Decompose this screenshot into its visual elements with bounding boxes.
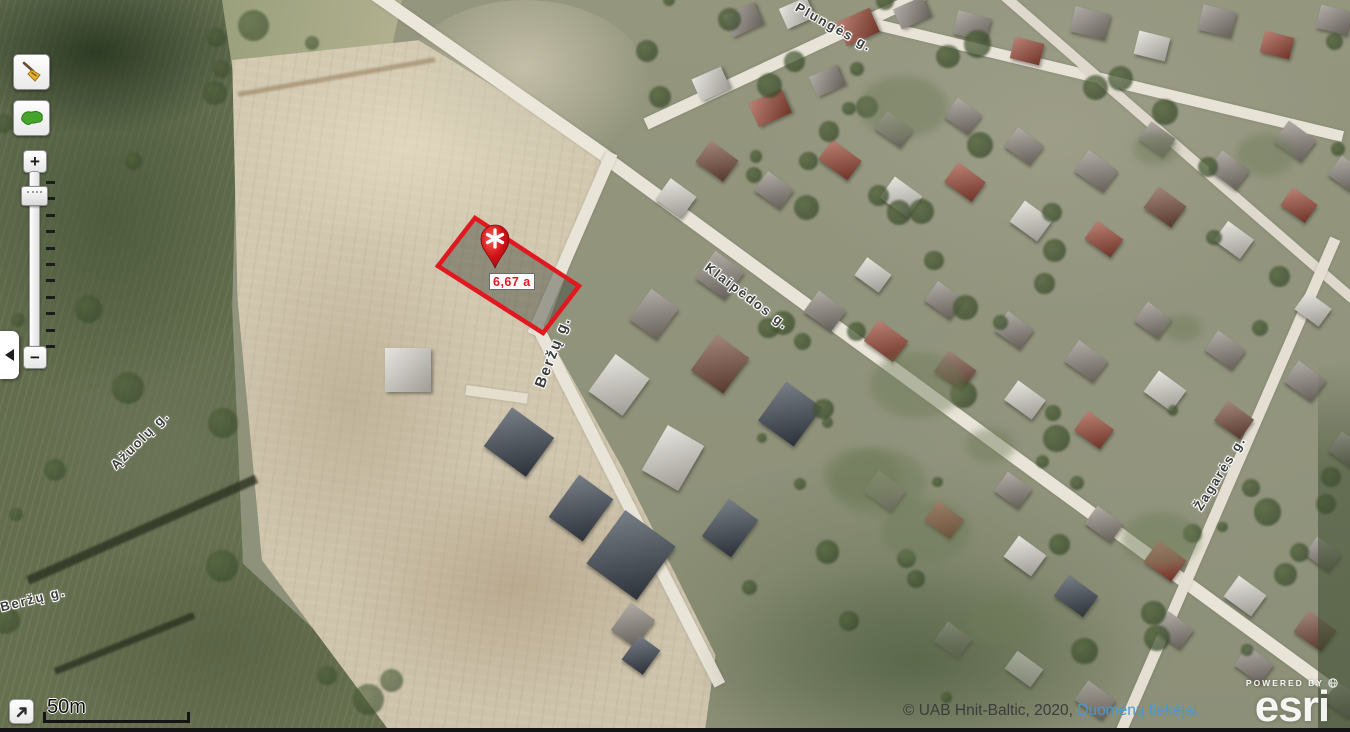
overview-map-button[interactable] bbox=[9, 699, 34, 724]
zoom-out-button[interactable]: − bbox=[23, 346, 47, 369]
esri-branding: POWERED BY esri bbox=[1246, 678, 1338, 724]
copyright-text: © UAB Hnit-Baltic, 2020, bbox=[903, 702, 1077, 719]
collapse-panel-button[interactable] bbox=[0, 331, 19, 379]
globe-icon bbox=[1328, 678, 1338, 688]
diagonal-arrow-icon bbox=[14, 704, 30, 720]
broom-icon bbox=[20, 60, 44, 84]
plot-area-label: 6,67 a bbox=[489, 273, 535, 290]
full-extent-button[interactable] bbox=[13, 100, 50, 136]
lithuania-map-icon bbox=[19, 107, 45, 129]
map-viewport[interactable]: 6,67 a Plungės g. Klaipėdos g. Beržų g. … bbox=[0, 0, 1350, 732]
zoom-slider-handle[interactable] bbox=[21, 186, 48, 206]
scale-bar bbox=[43, 712, 190, 723]
satellite-imagery bbox=[0, 0, 1350, 732]
esri-logo: esri bbox=[1246, 690, 1338, 724]
map-attribution: © UAB Hnit-Baltic, 2020, Duomenų tiekėja… bbox=[903, 702, 1197, 720]
data-providers-link[interactable]: Duomenų tiekėjai bbox=[1077, 702, 1197, 719]
clear-selection-button[interactable] bbox=[13, 54, 50, 90]
bottom-border bbox=[0, 728, 1350, 732]
zoom-in-button[interactable]: + bbox=[23, 150, 47, 173]
chevron-left-icon bbox=[5, 349, 14, 361]
